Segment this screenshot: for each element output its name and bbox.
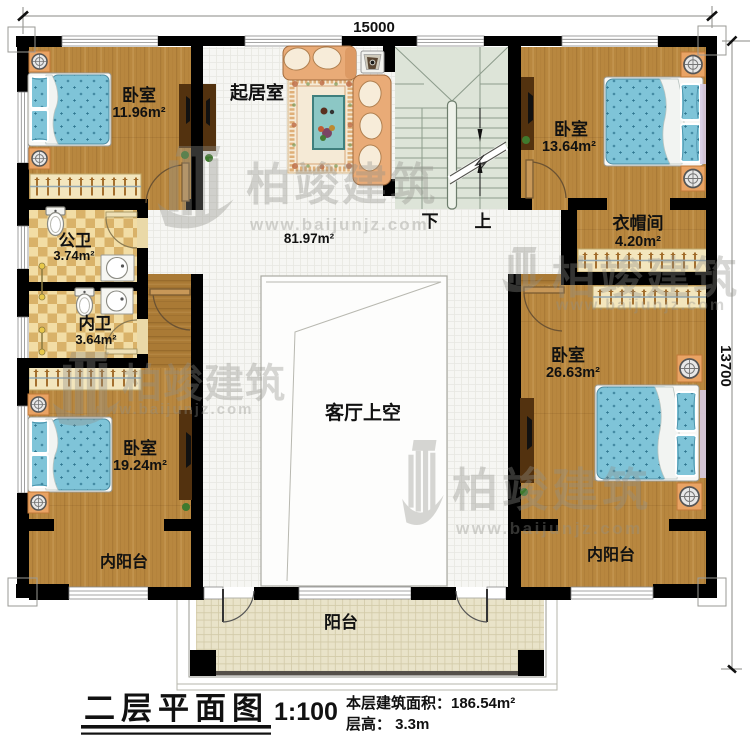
svg-text:19.24m²: 19.24m² (113, 458, 167, 474)
svg-text:卧室: 卧室 (551, 345, 585, 365)
svg-text:内阳台: 内阳台 (100, 552, 148, 571)
svg-text:柏竣建筑: 柏竣建筑 (122, 362, 286, 406)
svg-text:3.74m²: 3.74m² (53, 248, 95, 263)
svg-text:3.64m²: 3.64m² (75, 332, 117, 347)
svg-text:柏竣建筑: 柏竣建筑 (246, 159, 438, 210)
svg-text:卧室: 卧室 (122, 85, 156, 105)
svg-text:本层建筑面积：186.54m²: 本层建筑面积：186.54m² (346, 694, 515, 712)
svg-text:1:100: 1:100 (274, 698, 338, 726)
svg-text:13.64m²: 13.64m² (542, 139, 596, 155)
svg-text:www.baijunjz.com: www.baijunjz.com (249, 215, 429, 234)
svg-text:4.20m²: 4.20m² (615, 234, 661, 250)
svg-text:上: 上 (475, 212, 492, 231)
svg-text:客厅上空: 客厅上空 (325, 401, 401, 424)
svg-text:柏竣建筑: 柏竣建筑 (552, 254, 740, 303)
svg-text:www.baijunjz.com: www.baijunjz.com (455, 519, 643, 538)
svg-text:13700: 13700 (717, 345, 734, 387)
svg-text:二层平面图: 二层平面图 (84, 691, 269, 726)
svg-text:柏竣建筑: 柏竣建筑 (452, 464, 652, 516)
svg-text:11.96m²: 11.96m² (112, 105, 165, 121)
svg-text:卧室: 卧室 (554, 119, 588, 139)
svg-text:www.baijunjz.com: www.baijunjz.com (91, 401, 253, 418)
svg-text:内阳台: 内阳台 (587, 545, 635, 564)
svg-text:层高： 3.3m: 层高： 3.3m (346, 715, 429, 733)
svg-text:下: 下 (422, 212, 439, 231)
svg-text:26.63m²: 26.63m² (546, 365, 600, 381)
svg-text:衣帽间: 衣帽间 (613, 213, 664, 233)
svg-text:81.97m²: 81.97m² (284, 231, 335, 246)
svg-text:卧室: 卧室 (123, 438, 157, 458)
svg-text:www.baijunjz.com: www.baijunjz.com (555, 297, 726, 314)
svg-text:内卫: 内卫 (79, 313, 112, 333)
svg-text:15000: 15000 (353, 19, 395, 36)
svg-text:起居室: 起居室 (229, 82, 284, 103)
svg-text:阳台: 阳台 (324, 612, 358, 632)
